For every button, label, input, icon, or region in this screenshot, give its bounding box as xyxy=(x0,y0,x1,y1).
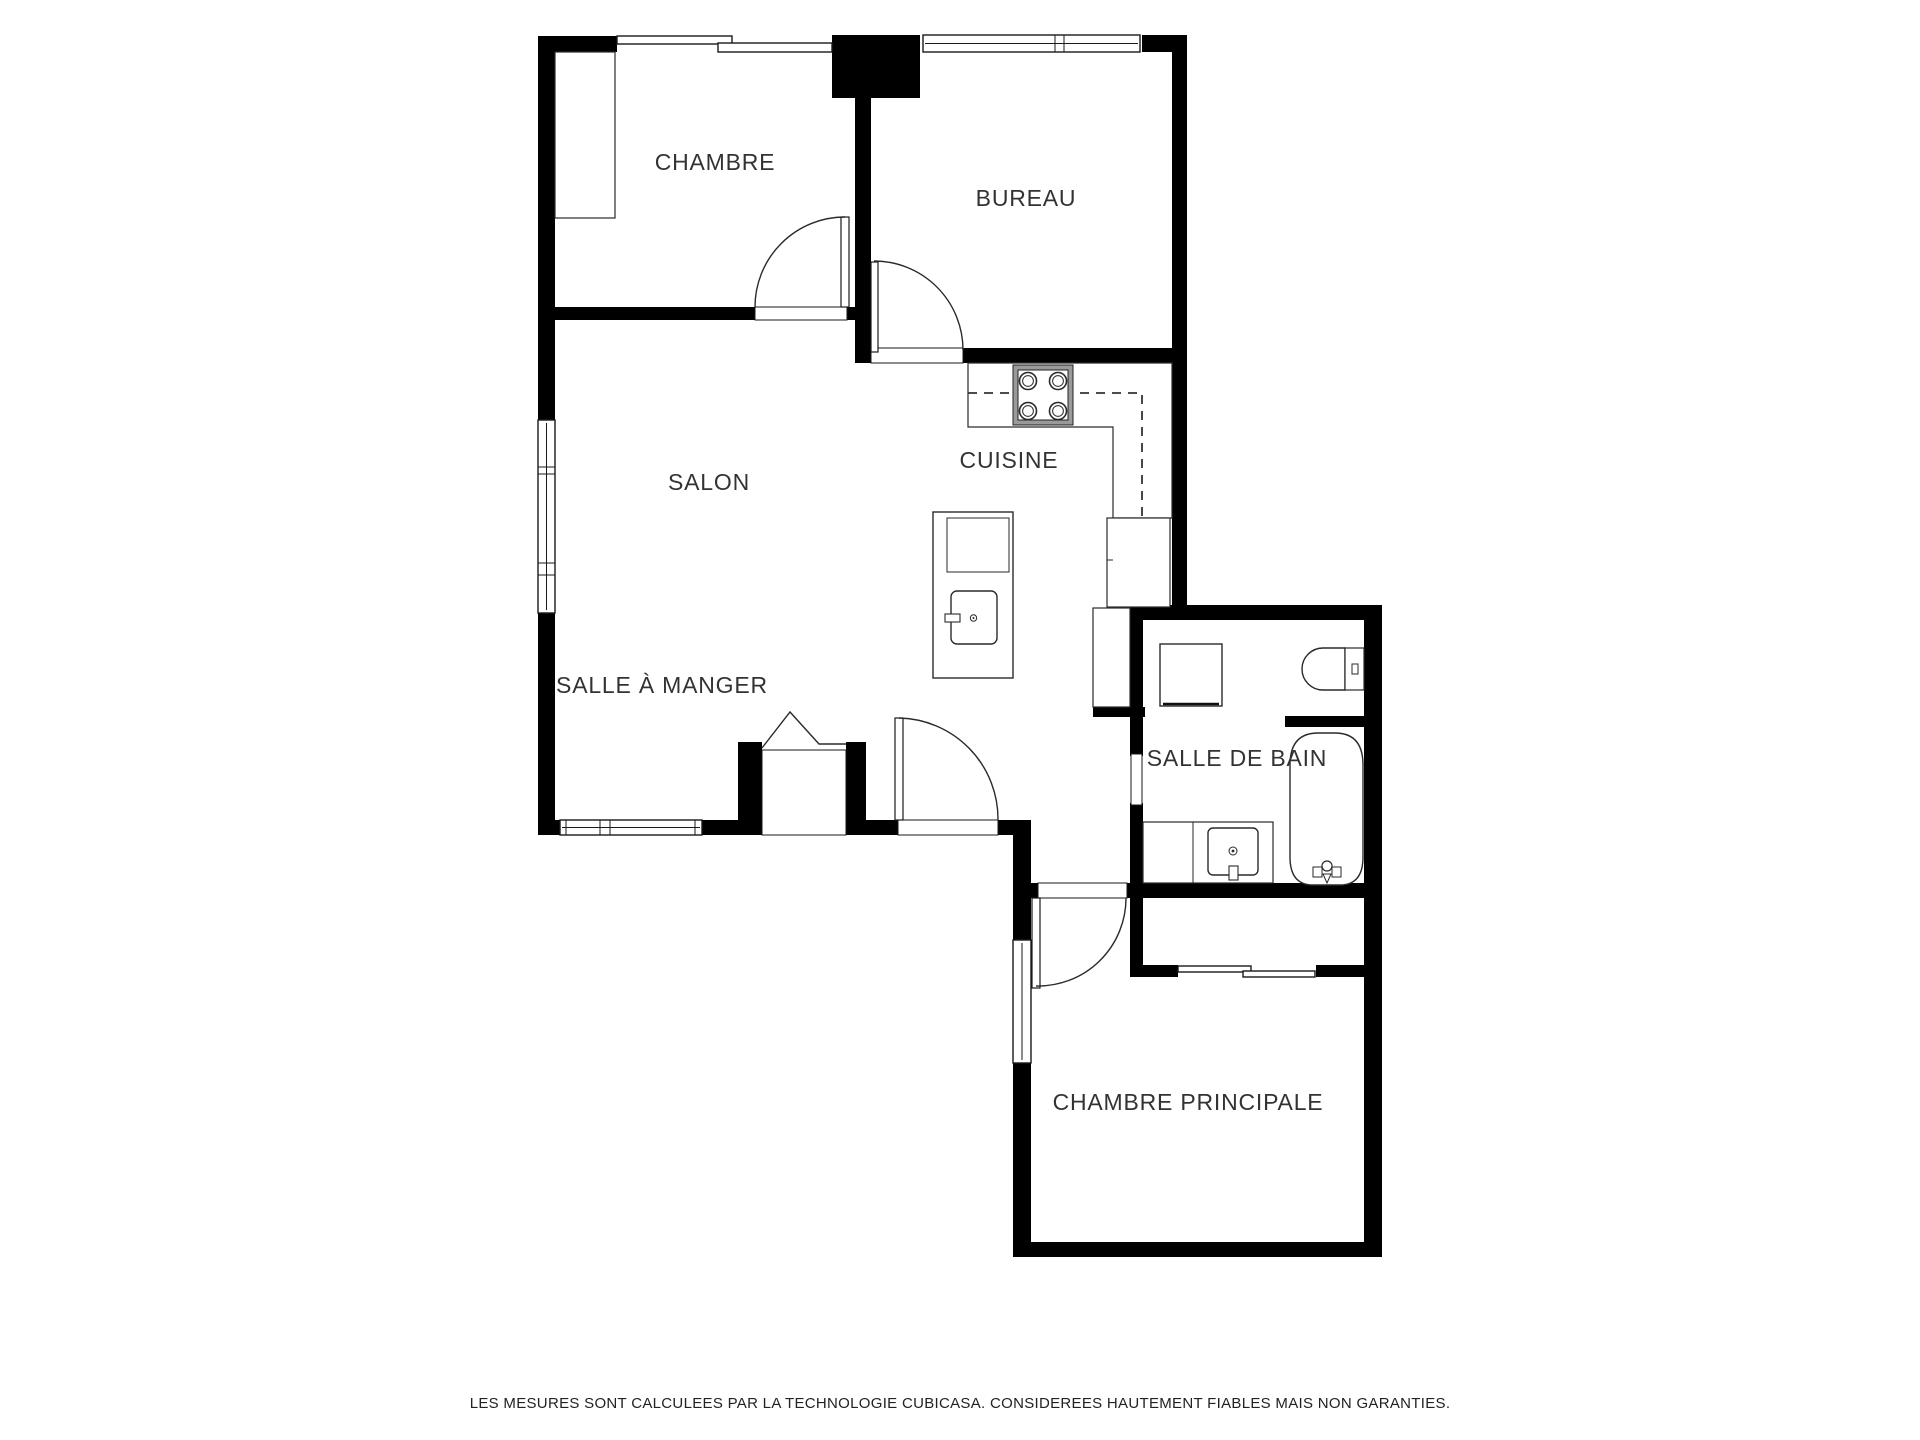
washing-machine-icon xyxy=(1160,644,1222,706)
bureau-window xyxy=(923,35,1140,52)
chambre-closet xyxy=(555,52,615,218)
chambre-door xyxy=(755,217,849,320)
dishwasher-icon xyxy=(1107,518,1170,607)
kitchen-island xyxy=(933,512,1013,678)
room-label-salle-de-bain: SALLE DE BAIN xyxy=(1147,745,1327,771)
floor-plan: CHAMBRE BUREAU SALON CUISINE SALLE À MAN… xyxy=(0,0,1920,1440)
room-label-salle-a-manger: SALLE À MANGER xyxy=(556,672,768,698)
room-label-salon: SALON xyxy=(668,469,750,495)
patio-double-door xyxy=(762,712,846,835)
bathroom-pocket-door xyxy=(1131,754,1142,805)
room-label-cuisine: CUISINE xyxy=(960,447,1059,473)
disclaimer-text: LES MESURES SONT CALCULEES PAR LA TECHNO… xyxy=(470,1395,1451,1412)
salle-a-manger-window xyxy=(560,820,702,835)
master-suite-door xyxy=(1032,883,1127,988)
closet-sliding-doors xyxy=(1178,966,1315,977)
entry-door xyxy=(895,718,998,835)
stove-icon xyxy=(1013,365,1073,425)
toilet-icon xyxy=(1302,648,1364,690)
chimney-block xyxy=(832,35,920,98)
island-sink-icon xyxy=(945,591,997,644)
salon-window xyxy=(538,420,555,613)
room-label-chambre: CHAMBRE xyxy=(655,149,776,175)
refrigerator-icon xyxy=(1093,608,1130,707)
chambre-window xyxy=(617,36,832,52)
vanity-sink-icon xyxy=(1143,822,1273,883)
bureau-door xyxy=(871,261,963,363)
floor-plan-page: { "canvas": { "width": 1920, "height": 1… xyxy=(0,0,1920,1440)
room-label-chambre-principale: CHAMBRE PRINCIPALE xyxy=(1053,1089,1324,1115)
room-label-bureau: BUREAU xyxy=(976,185,1077,211)
chambre-principale-window xyxy=(1013,940,1031,1063)
